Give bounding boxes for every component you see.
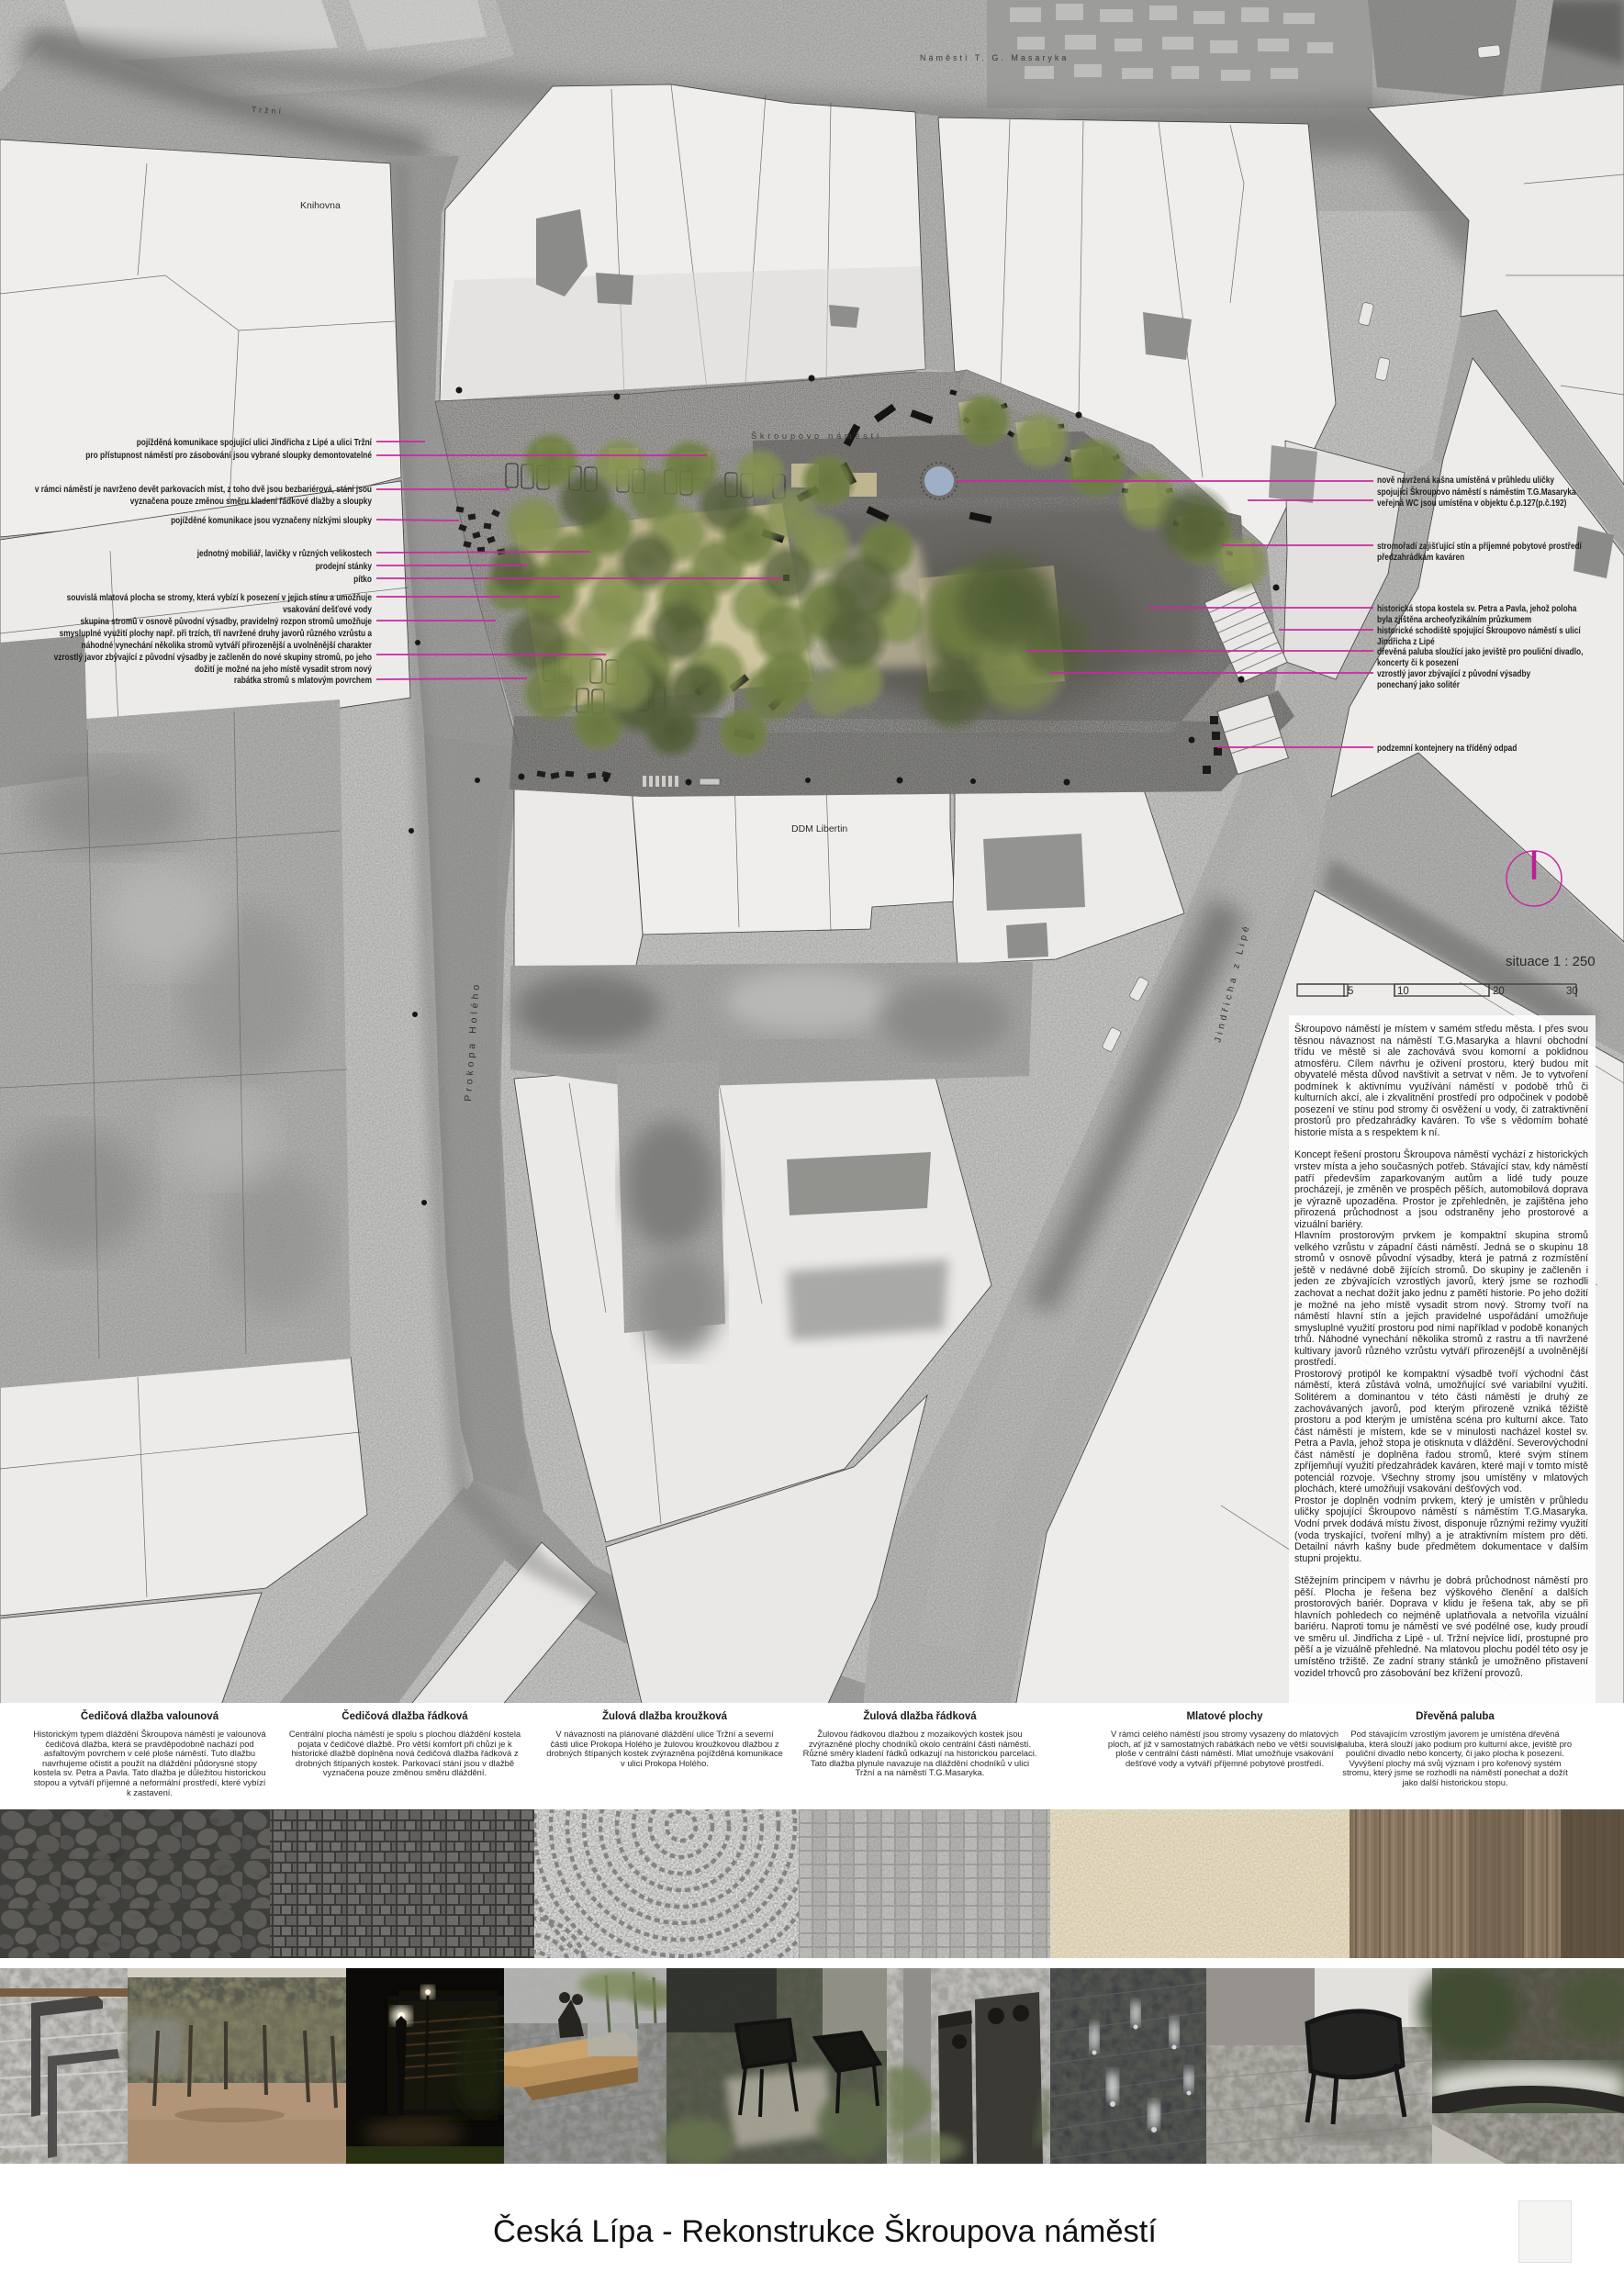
svg-text:vyznačena pouze změnou směru k: vyznačena pouze změnou směru kladení řád… [130,495,373,506]
svg-text:podzemní kontejnery na tříděný: podzemní kontejnery na tříděný odpad [1377,742,1518,753]
svg-text:vzrostlý javor zbývající z pův: vzrostlý javor zbývající z původní výsad… [1377,667,1531,678]
svg-text:koncerty či k posezení: koncerty či k posezení [1377,656,1459,667]
svg-text:vsakování dešťové vody: vsakování dešťové vody [283,603,373,614]
svg-text:skupina stromů v osnově původn: skupina stromů v osnově původní výsadby,… [80,615,372,626]
svg-text:ponechaný jako solitér: ponechaný jako solitér [1377,678,1460,689]
svg-text:byla zjištěna archeofyzikálním: byla zjištěna archeofyzikálním průzkumem [1377,613,1531,624]
svg-text:stromořadí zajišťující stín a: stromořadí zajišťující stín a příjemné p… [1377,540,1582,551]
svg-text:nově navržená kašna umístěná v: nově navržená kašna umístěná v průhledu … [1377,474,1555,485]
svg-text:smysluplné využití plochy např: smysluplné využití plochy např. při trzí… [60,627,373,638]
svg-text:prodejní stánky: prodejní stánky [316,560,373,571]
svg-text:pítko: pítko [353,573,372,584]
svg-text:jednotný mobiliář, lavičky v r: jednotný mobiliář, lavičky v různých vel… [196,547,372,558]
svg-text:historická stopa kostela sv. P: historická stopa kostela sv. Petra a Pav… [1377,602,1577,613]
svg-text:situace 1 : 250: situace 1 : 250 [1506,954,1596,969]
svg-text:5: 5 [1348,986,1353,997]
svg-text:Škroupovo náměstí: Škroupovo náměstí [751,431,882,442]
svg-text:historické schodiště spojující: historické schodiště spojující Škroupovo… [1377,624,1581,635]
svg-text:30: 30 [1566,986,1578,997]
svg-text:rabátka stromů s mlatovým povr: rabátka stromů s mlatovým povrchem [234,674,372,685]
svg-text:veřejná WC jsou umístěna v obj: veřejná WC jsou umístěna v objektu č.p.1… [1377,497,1566,508]
svg-text:DDM Libertin: DDM Libertin [791,823,847,834]
svg-text:pro přístupnost náměstí pro zá: pro přístupnost náměstí pro zásobování j… [85,449,372,460]
svg-text:20: 20 [1493,986,1505,997]
svg-text:dřevěná paluba sloužící jako j: dřevěná paluba sloužící jako jeviště pro… [1377,645,1583,656]
svg-text:Náměstí T. G. Masaryka: Náměstí T. G. Masaryka [920,53,1069,62]
svg-text:dožití je možné na jeho místě: dožití je možné na jeho místě vysadit st… [195,663,373,674]
svg-text:předzahrádkám kaváren: předzahrádkám kaváren [1377,551,1464,562]
svg-text:náhodné vynechání několika str: náhodné vynechání několika stromů vytvář… [82,639,373,650]
svg-text:pojížděná komunikace spojující: pojížděná komunikace spojující ulici Jin… [137,436,373,447]
svg-text:Knihovna: Knihovna [300,200,341,211]
svg-text:spojující Škroupovo náměstí s: spojující Škroupovo náměstí s náměstím T… [1377,486,1576,497]
svg-text:10: 10 [1397,986,1409,997]
svg-text:v rámci náměstí je navrženo de: v rámci náměstí je navrženo devět parkov… [35,483,372,494]
svg-text:souvislá mlatová plocha se str: souvislá mlatová plocha se stromy, která… [67,591,372,602]
svg-text:vzrostlý javor zbývající z pův: vzrostlý javor zbývající z původní výsad… [54,651,373,662]
svg-text:pojížděné komunikace jsou vyzn: pojížděné komunikace jsou vyznačeny nízk… [171,514,373,525]
